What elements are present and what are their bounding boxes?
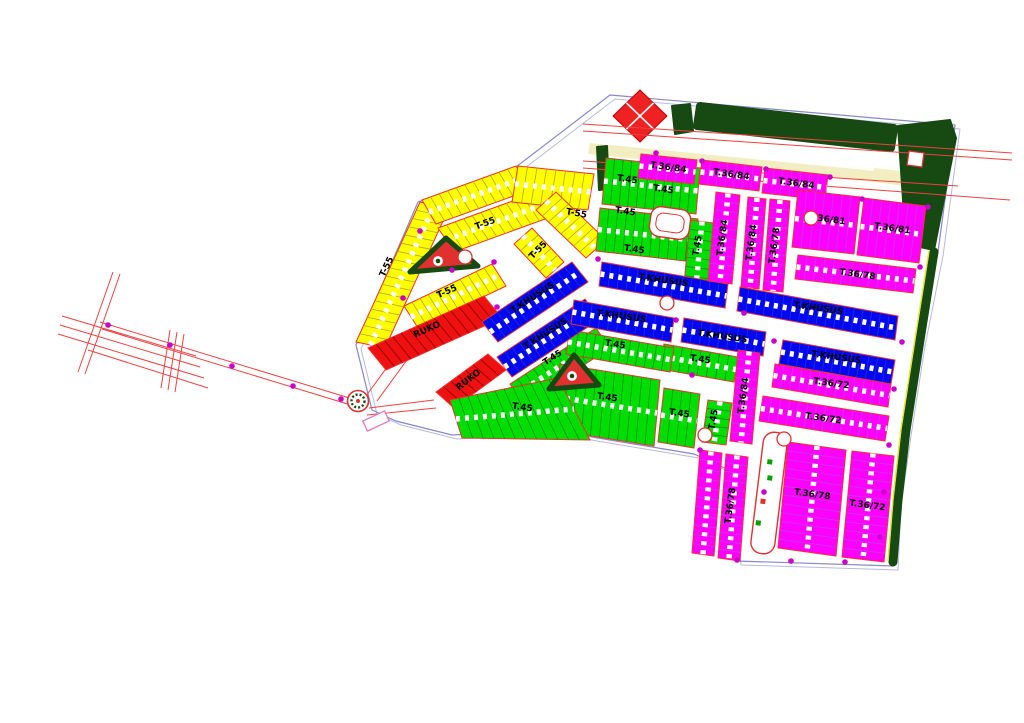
road-node-dot [842, 559, 848, 565]
road-circle [458, 250, 472, 264]
road-node-dot [763, 166, 769, 172]
road-line [369, 400, 434, 408]
road-line [58, 334, 204, 378]
housing-block-t3681-ne2: T.36/81 [857, 198, 926, 263]
road-node-dot [886, 442, 892, 448]
housing-block-t3678-se1: T.36/78 [778, 442, 846, 556]
housing-block-t3678-sw2v: T.36/78 [718, 454, 748, 561]
green-band-top [697, 106, 894, 148]
housing-block-t3681-ne1: T.36/81 [792, 190, 860, 254]
housing-block-t55-ne3: T-55 [514, 228, 564, 278]
road-node-dot [891, 386, 897, 392]
road-node-dot [925, 204, 931, 210]
site-plan-page: T-55T-55T-55T-55T-55RUKORUKOT.45T.45T.45… [0, 0, 1024, 723]
road-node-dot [338, 396, 344, 402]
housing-block-t36-sw1v [692, 450, 722, 556]
road-node-dot [761, 489, 767, 495]
road-node-dot [449, 267, 455, 273]
green-edge-strip [893, 252, 934, 562]
road-node-dot [859, 196, 865, 202]
road-node-dot [491, 259, 497, 265]
road-node-dot [290, 383, 296, 389]
red-diamond-marker [613, 90, 667, 142]
road-line [100, 322, 356, 400]
road-node-dot [653, 150, 659, 156]
road-node-dot [417, 228, 423, 234]
road-node-dot [673, 317, 679, 323]
road-node-dot [877, 534, 883, 540]
road-node-dot [400, 295, 406, 301]
road-node-dot [741, 310, 747, 316]
green-strip-top-small [672, 104, 693, 134]
entrance-roundabout [348, 391, 369, 412]
road-line [168, 332, 177, 390]
road-node-dot [899, 339, 905, 345]
road-node-dot [734, 557, 740, 563]
park-loop [648, 205, 692, 240]
road-node-dot [229, 363, 235, 369]
utility-square [907, 151, 924, 167]
road-node-dot [917, 264, 923, 270]
road-node-dot [494, 304, 500, 310]
road-node-dot [881, 489, 887, 495]
road-line [175, 334, 184, 392]
road-node-dot [595, 256, 601, 262]
road-node-dot [167, 342, 173, 348]
road-circle [777, 432, 791, 446]
road-node-dot [105, 322, 111, 328]
housing-block-t3678-v3: T.36/78 [763, 199, 790, 292]
road-node-dot [689, 372, 695, 378]
road-node-dot [699, 158, 705, 164]
road-line [161, 330, 170, 388]
housing-block-t45-s4: T.45 [658, 388, 700, 448]
housing-block-t3684-v1: T.36/84 [708, 192, 740, 284]
road-node-dot [827, 174, 833, 180]
road-node-dot [788, 558, 794, 564]
housing-block-t3684-v2: T.36/84 [741, 197, 766, 289]
road-circle [804, 211, 818, 225]
road-circle [698, 428, 712, 442]
road-line [102, 329, 354, 406]
housing-block-t3672-se2: T.36/72 [842, 451, 894, 562]
road-node-dot [697, 447, 703, 453]
road-circle [660, 296, 674, 310]
road-node-dot [771, 338, 777, 344]
site-plan-canvas: T-55T-55T-55T-55T-55RUKORUKOT.45T.45T.45… [0, 0, 1024, 723]
